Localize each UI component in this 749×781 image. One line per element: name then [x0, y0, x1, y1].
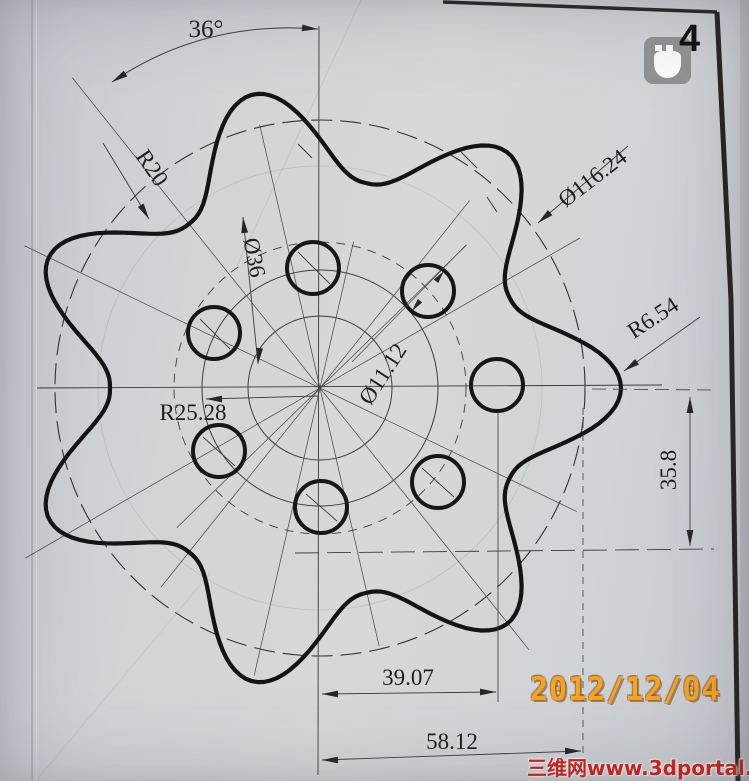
- hole-offset-label: 39.07: [382, 665, 434, 690]
- engineering-drawing: 36° R20 Ø116.24 Ø36 Ø11.12 R6.54 R25.28 …: [0, 0, 749, 781]
- watermark: 三维网www.3dportal.cn: [527, 752, 749, 781]
- hole-diameter-label: Ø11.12: [354, 339, 412, 409]
- mouse-body: [654, 51, 681, 78]
- inner-diameter-label: Ø36: [238, 236, 270, 280]
- pitch-diameter-label: Ø116.24: [553, 144, 631, 212]
- angle-dim-label: 36°: [189, 16, 224, 43]
- ref-radius-label: R25.28: [159, 400, 226, 425]
- page-number: 4: [679, 18, 700, 61]
- book-page-photo: 36° R20 Ø116.24 Ø36 Ø11.12 R6.54 R25.28 …: [0, 0, 749, 781]
- vertical-offset-label: 35.8: [656, 450, 681, 490]
- pitch-radius-label: 58.12: [426, 729, 478, 754]
- date-stamp: 2012/12/04: [530, 671, 721, 709]
- root-radius-label: R20: [131, 145, 173, 191]
